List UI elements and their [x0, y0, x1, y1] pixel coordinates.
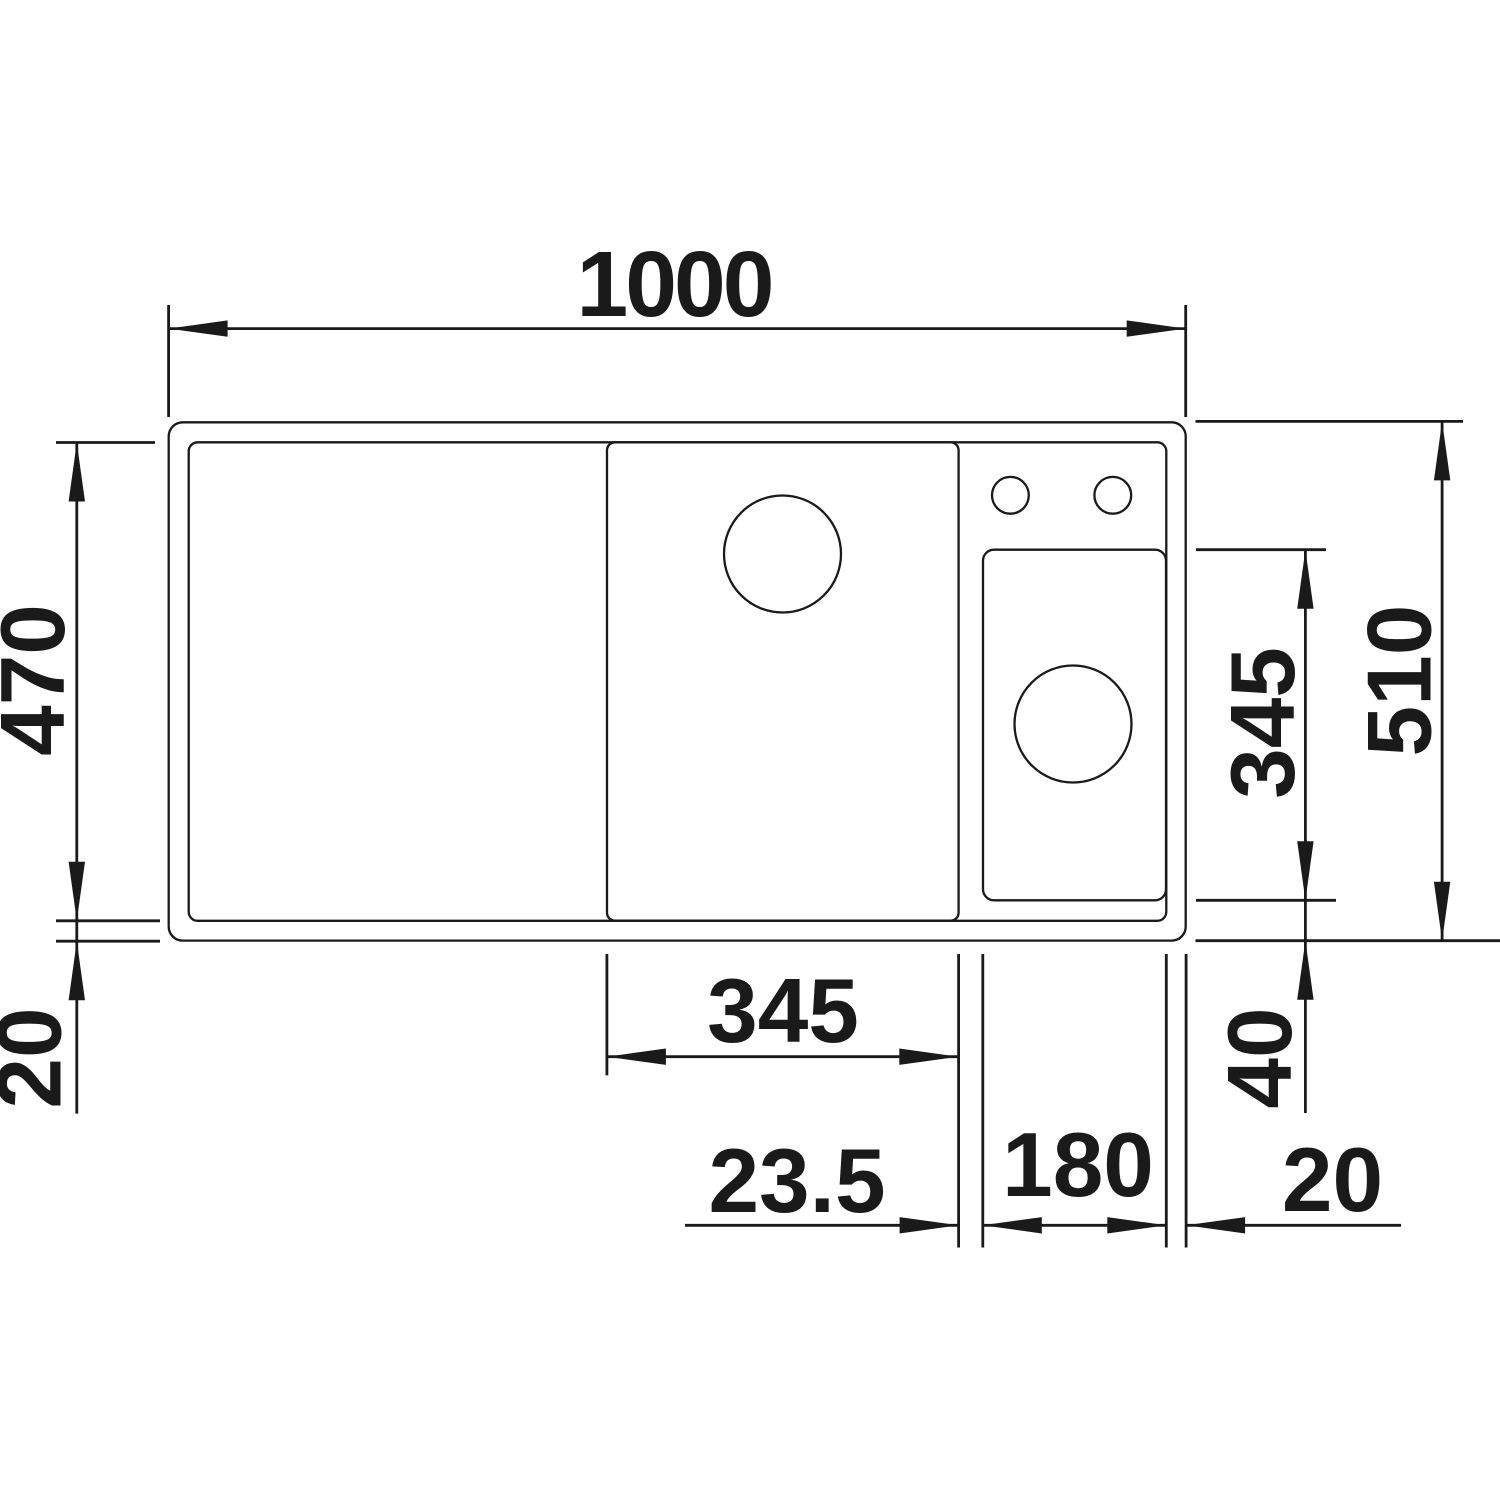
svg-text:20: 20 [0, 1007, 81, 1108]
svg-text:20: 20 [1282, 1130, 1383, 1231]
svg-text:510: 510 [1350, 605, 1451, 757]
svg-text:1000: 1000 [577, 232, 772, 336]
svg-text:40: 40 [1210, 1007, 1311, 1108]
svg-text:345: 345 [707, 961, 859, 1062]
svg-text:23.5: 23.5 [708, 1131, 885, 1232]
svg-text:470: 470 [0, 604, 84, 756]
svg-text:180: 180 [1002, 1115, 1154, 1216]
svg-text:345: 345 [1213, 647, 1314, 799]
